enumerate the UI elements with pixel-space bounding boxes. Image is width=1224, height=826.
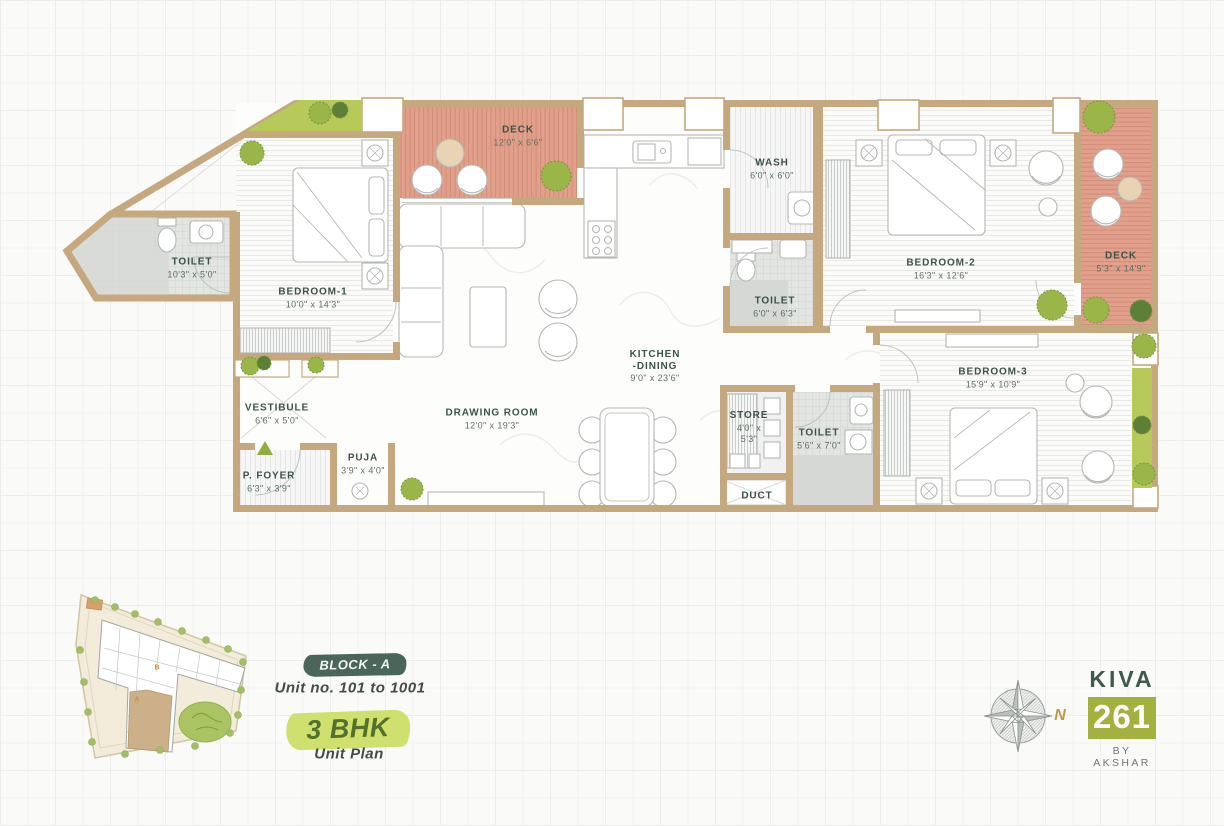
drawing-room-table (470, 287, 506, 347)
p-foyer-floor (236, 450, 330, 505)
bhk-badge: 3 BHK (286, 709, 411, 750)
bedroom-1-bed (293, 168, 388, 262)
site-block-b-label: B (154, 665, 159, 672)
bedroom-3-bed (950, 408, 1037, 504)
site-key-plan (76, 595, 247, 758)
bedroom-2-chair (1029, 151, 1063, 185)
bedroom-3-console (946, 334, 1038, 347)
dining-set (579, 408, 676, 507)
block-badge: BLOCK - A (303, 653, 407, 677)
floor-plan-canvas (0, 0, 1224, 826)
garden (179, 702, 231, 742)
tv-console (428, 492, 544, 507)
bedroom-3-wardrobe (884, 390, 910, 476)
drawing-room-chair (539, 280, 577, 318)
toilet-3-shower-area (793, 455, 873, 505)
brand-logo: KIVA 261 BY AKSHAR (1088, 666, 1156, 769)
bedroom-2-wardrobe (826, 160, 850, 258)
bedroom-3-chair (1082, 451, 1114, 483)
floor-plan-page: { "plan": { "rooms": { "toilet1": {"name… (0, 0, 1224, 826)
north-label: N (1054, 707, 1066, 725)
bedroom-3-pouf (1066, 374, 1084, 392)
site-block-a-label: A (134, 697, 139, 704)
bedroom-2-pouf (1039, 198, 1057, 216)
store-shelves (727, 394, 780, 468)
puja-stand (352, 483, 368, 499)
plan-type-text: Unit Plan (314, 746, 384, 763)
brand-byline: BY AKSHAR (1088, 745, 1156, 769)
brand-number: 261 (1088, 697, 1156, 739)
bedroom-2-bed (888, 135, 985, 235)
bedroom-2-bench (895, 310, 980, 322)
unit-range-text: Unit no. 101 to 1001 (275, 680, 426, 697)
brand-name: KIVA (1088, 666, 1156, 693)
toilet-2-shower-area (730, 280, 788, 326)
bedroom-1-wardrobe (237, 328, 330, 353)
bedroom-3-chair (1080, 386, 1112, 418)
drawing-room-chair (539, 323, 577, 361)
duct-shaft (723, 480, 786, 505)
compass-rose-icon (984, 680, 1052, 752)
